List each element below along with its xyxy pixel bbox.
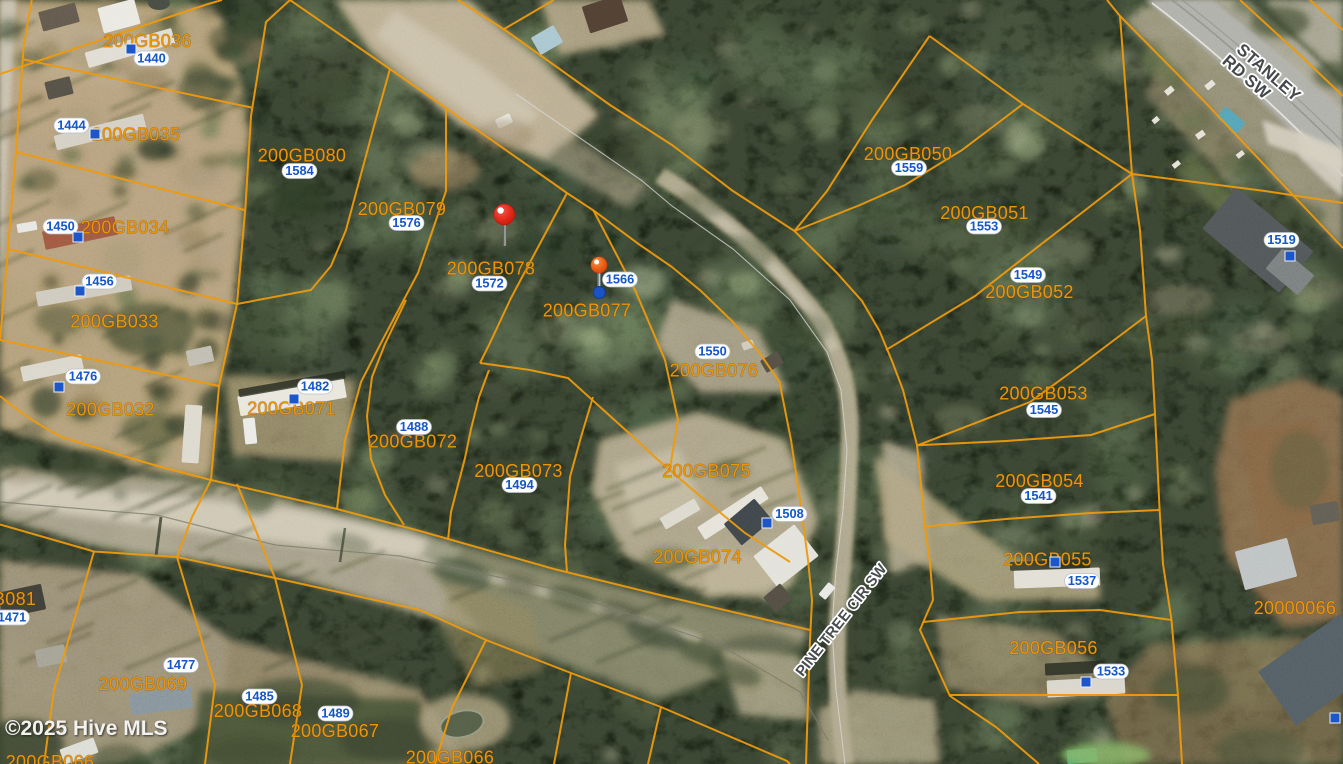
svg-text:1584: 1584 xyxy=(285,163,314,178)
svg-text:1482: 1482 xyxy=(301,379,329,394)
svg-text:200GB053: 200GB053 xyxy=(999,384,1087,404)
svg-text:1519: 1519 xyxy=(1267,232,1295,247)
svg-text:1476: 1476 xyxy=(69,369,97,384)
svg-text:1450: 1450 xyxy=(46,219,74,234)
svg-text:200GB066: 200GB066 xyxy=(6,752,94,764)
svg-text:200GB033: 200GB033 xyxy=(70,312,158,332)
svg-text:20000066: 20000066 xyxy=(1254,598,1337,618)
svg-text:1489: 1489 xyxy=(321,706,349,721)
svg-text:200GB055: 200GB055 xyxy=(1003,550,1091,570)
svg-text:200GB081: 200GB081 xyxy=(0,589,36,609)
svg-text:200GB077: 200GB077 xyxy=(543,301,631,321)
svg-text:1545: 1545 xyxy=(1030,402,1058,417)
svg-text:200GB069: 200GB069 xyxy=(99,674,187,694)
svg-text:1477: 1477 xyxy=(167,657,195,672)
svg-text:200GB036: 200GB036 xyxy=(103,31,191,51)
svg-text:200GB052: 200GB052 xyxy=(985,282,1073,302)
svg-text:1494: 1494 xyxy=(505,477,534,492)
svg-text:1488: 1488 xyxy=(400,419,428,434)
svg-text:200GB067: 200GB067 xyxy=(291,721,379,741)
svg-text:1485: 1485 xyxy=(245,689,273,704)
svg-text:1456: 1456 xyxy=(85,274,113,289)
svg-text:©2025 Hive MLS: ©2025 Hive MLS xyxy=(5,717,168,740)
svg-text:1444: 1444 xyxy=(57,118,86,133)
svg-text:1471: 1471 xyxy=(0,610,26,625)
svg-text:200GB075: 200GB075 xyxy=(662,461,750,481)
svg-text:200GB034: 200GB034 xyxy=(81,218,169,238)
svg-text:1553: 1553 xyxy=(970,219,998,234)
svg-text:200GB074: 200GB074 xyxy=(653,547,741,567)
svg-text:1549: 1549 xyxy=(1014,267,1042,282)
svg-text:200GB066: 200GB066 xyxy=(406,748,494,764)
svg-text:1576: 1576 xyxy=(392,215,420,230)
svg-text:1559: 1559 xyxy=(895,160,923,175)
svg-text:1541: 1541 xyxy=(1024,488,1052,503)
svg-text:1440: 1440 xyxy=(137,51,165,66)
svg-text:1508: 1508 xyxy=(775,506,803,521)
svg-text:1537: 1537 xyxy=(1068,573,1096,588)
svg-text:200GB076: 200GB076 xyxy=(670,361,758,381)
svg-text:1572: 1572 xyxy=(475,276,503,291)
svg-text:200GB032: 200GB032 xyxy=(66,400,154,420)
svg-text:200GB056: 200GB056 xyxy=(1009,638,1097,658)
svg-text:200GB035: 200GB035 xyxy=(92,125,180,145)
svg-text:1533: 1533 xyxy=(1097,664,1125,679)
svg-text:1550: 1550 xyxy=(698,344,726,359)
svg-text:1566: 1566 xyxy=(606,272,634,287)
